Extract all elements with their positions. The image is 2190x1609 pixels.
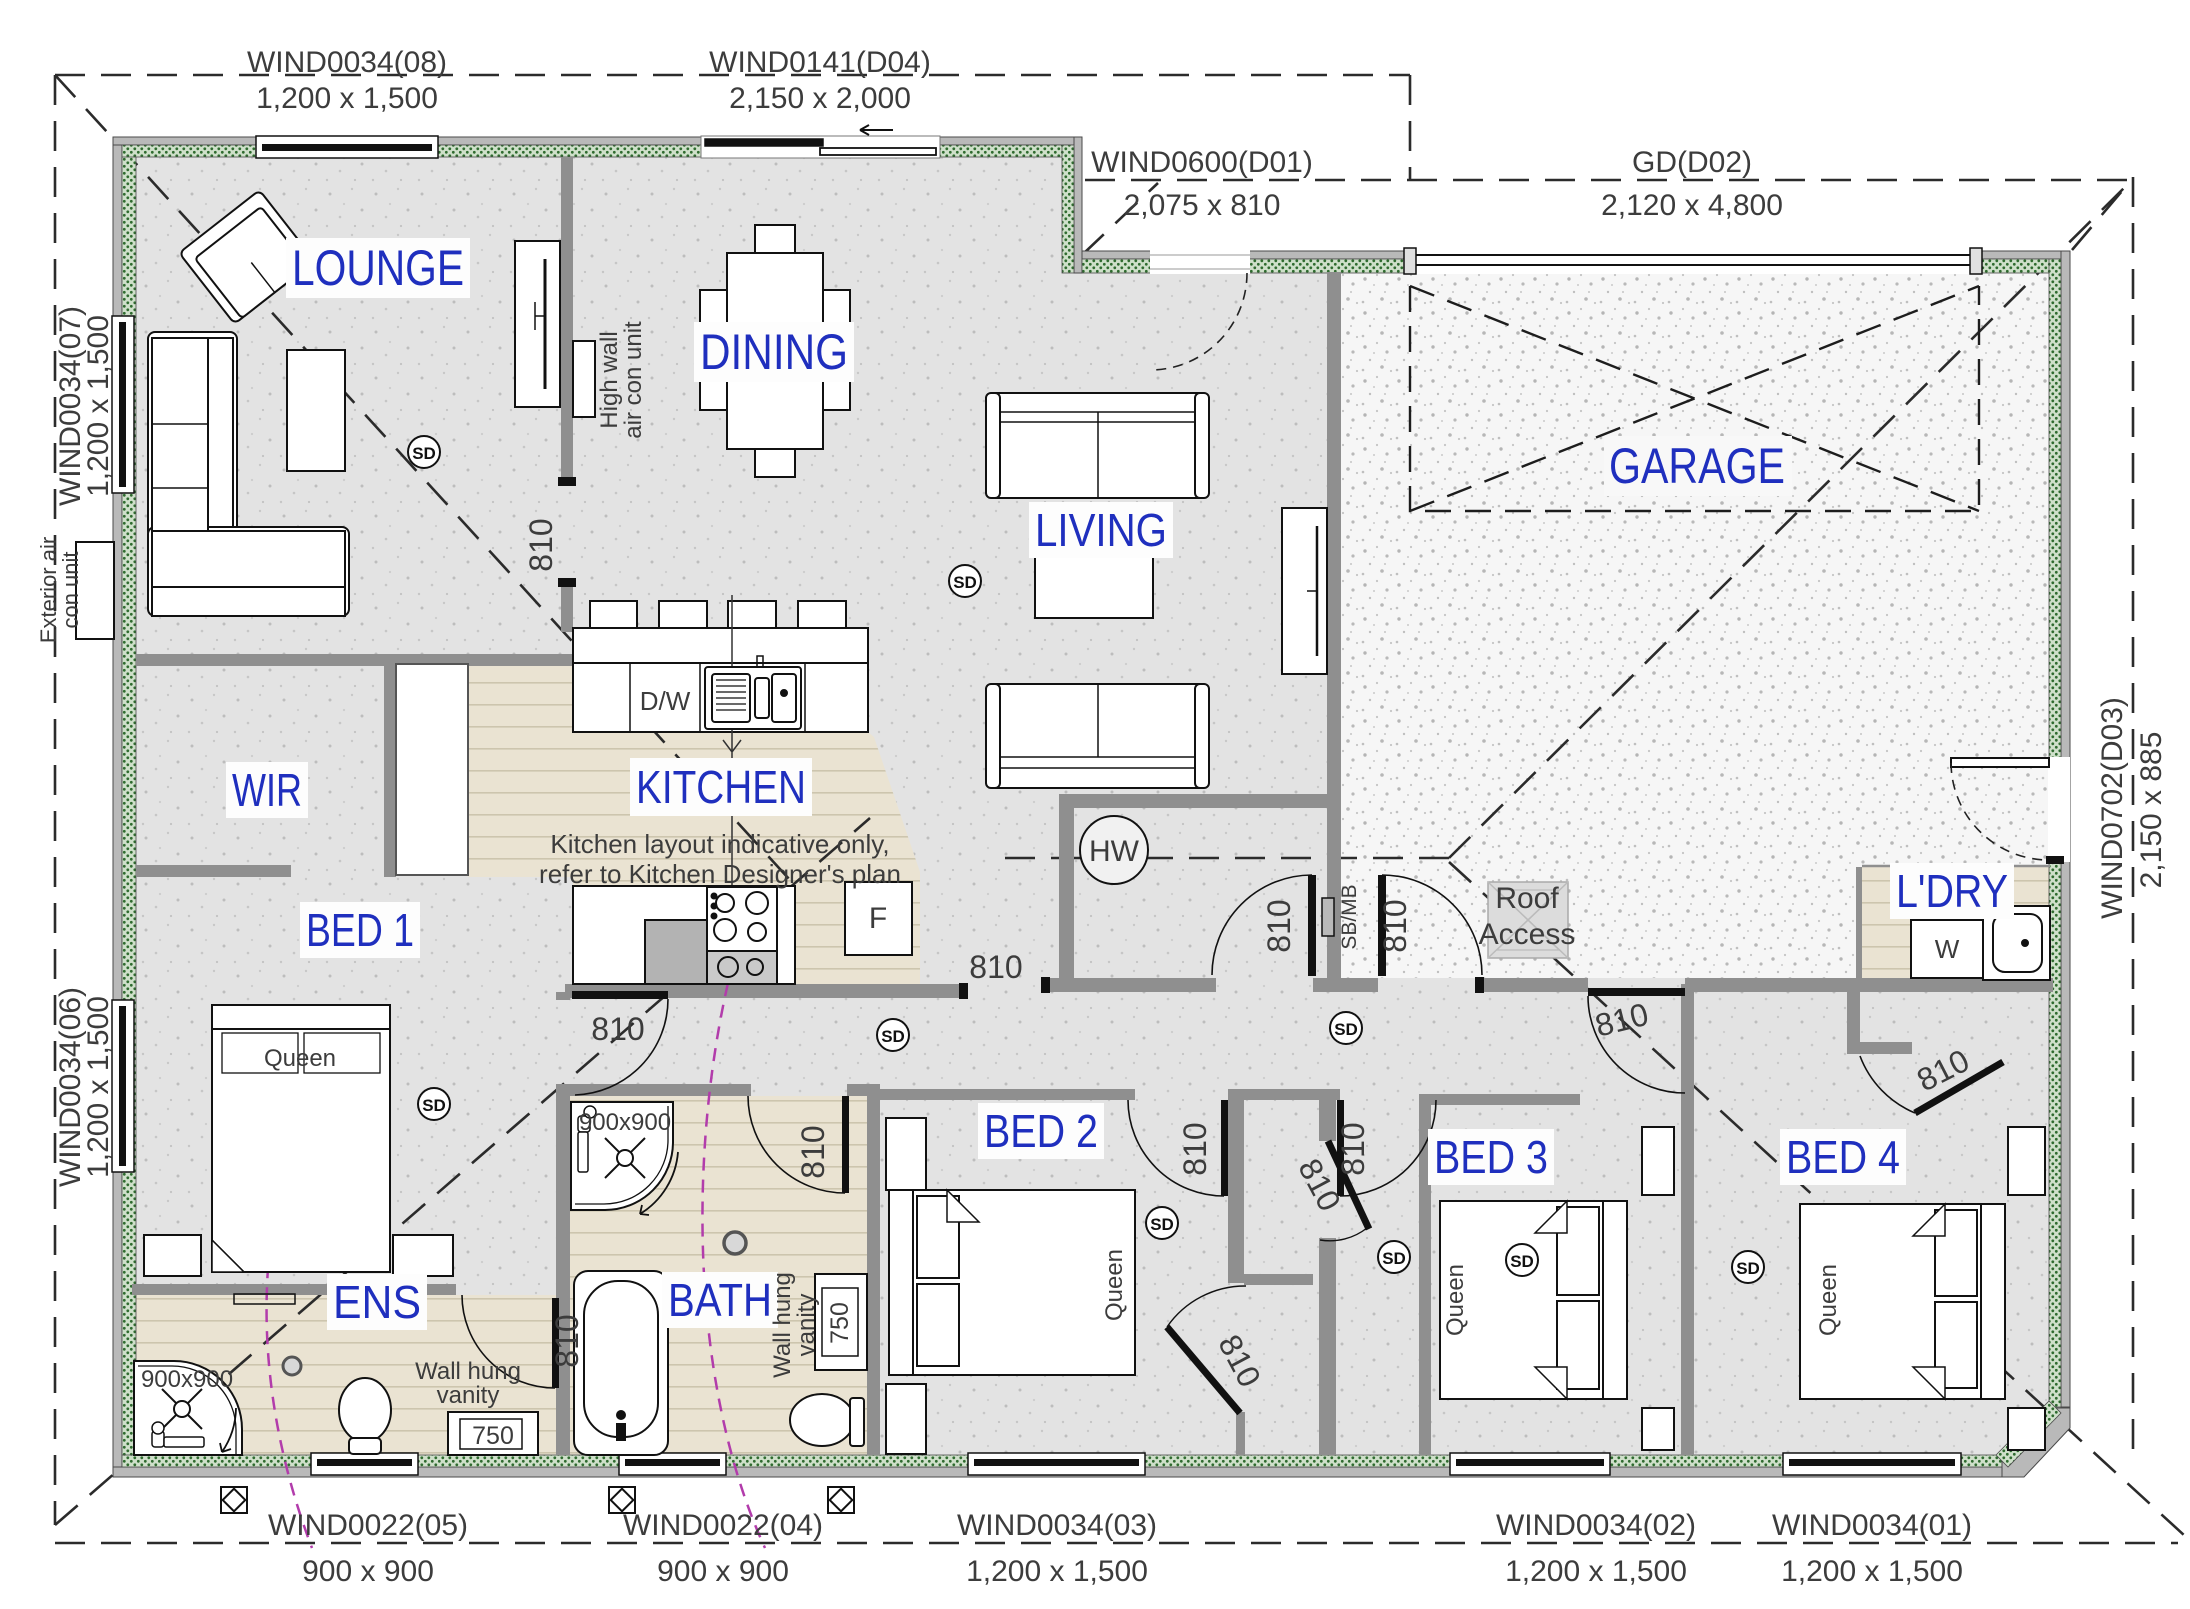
svg-text:KITCHEN: KITCHEN xyxy=(636,761,806,813)
svg-text:Roof: Roof xyxy=(1495,882,1559,915)
svg-text:810: 810 xyxy=(591,1011,644,1047)
svg-text:L'DRY: L'DRY xyxy=(1896,865,2008,917)
svg-text:900 x 900: 900 x 900 xyxy=(657,1555,789,1588)
svg-text:SD: SD xyxy=(412,444,436,463)
svg-text:W: W xyxy=(1935,934,1960,964)
svg-text:1,200 x 1,500: 1,200 x 1,500 xyxy=(256,82,438,115)
svg-text:Queen: Queen xyxy=(264,1045,336,1072)
svg-text:810: 810 xyxy=(549,1314,585,1367)
svg-text:ENS: ENS xyxy=(333,1276,421,1328)
svg-text:810: 810 xyxy=(795,1125,831,1178)
svg-text:Queen: Queen xyxy=(1815,1264,1842,1336)
svg-text:2,150 x 885: 2,150 x 885 xyxy=(2135,732,2168,889)
svg-text:Wall hung: Wall hung xyxy=(415,1358,521,1385)
svg-text:1,200 x 1,500: 1,200 x 1,500 xyxy=(82,996,115,1178)
svg-text:air con unit: air con unit xyxy=(620,321,647,439)
svg-text:High wall: High wall xyxy=(596,331,623,428)
svg-text:vanity: vanity xyxy=(437,1382,500,1409)
svg-text:Wall hung: Wall hung xyxy=(769,1272,796,1378)
svg-text:Queen: Queen xyxy=(1442,1264,1469,1336)
svg-text:LIVING: LIVING xyxy=(1035,504,1167,556)
svg-text:2,075 x 810: 2,075 x 810 xyxy=(1124,189,1281,222)
svg-text:900x900: 900x900 xyxy=(579,1109,671,1136)
svg-text:con unit: con unit xyxy=(58,551,83,628)
svg-text:WIND0702(D03): WIND0702(D03) xyxy=(2096,697,2129,919)
svg-text:WIND0034(01): WIND0034(01) xyxy=(1772,1509,1972,1542)
svg-text:refer to Kitchen Designer's pl: refer to Kitchen Designer's plan xyxy=(539,859,901,889)
svg-text:D/W: D/W xyxy=(640,686,691,716)
svg-text:WIND0022(05): WIND0022(05) xyxy=(268,1509,468,1542)
svg-text:810: 810 xyxy=(1377,899,1413,952)
svg-text:900 x 900: 900 x 900 xyxy=(302,1555,434,1588)
svg-text:WIND0034(03): WIND0034(03) xyxy=(957,1509,1157,1542)
svg-text:810: 810 xyxy=(1335,1122,1371,1175)
svg-text:BATH: BATH xyxy=(668,1274,772,1326)
svg-text:900x900: 900x900 xyxy=(141,1366,233,1393)
svg-text:WIND0034(08): WIND0034(08) xyxy=(247,46,447,79)
svg-text:DINING: DINING xyxy=(700,324,848,380)
svg-text:vanity: vanity xyxy=(793,1294,820,1357)
svg-text:GD(D02): GD(D02) xyxy=(1632,146,1752,179)
svg-text:810: 810 xyxy=(1177,1122,1213,1175)
svg-text:F: F xyxy=(869,902,887,935)
svg-text:GARAGE: GARAGE xyxy=(1609,438,1785,494)
svg-text:WIR: WIR xyxy=(232,764,302,816)
svg-text:WIND0034(02): WIND0034(02) xyxy=(1496,1509,1696,1542)
svg-text:1,200 x 1,500: 1,200 x 1,500 xyxy=(966,1555,1148,1588)
svg-text:Access: Access xyxy=(1479,918,1576,951)
svg-text:810: 810 xyxy=(1261,899,1297,952)
svg-text:1,200 x 1,500: 1,200 x 1,500 xyxy=(1781,1555,1963,1588)
svg-text:BED 4: BED 4 xyxy=(1786,1131,1900,1183)
svg-text:WIND0600(D01): WIND0600(D01) xyxy=(1091,146,1313,179)
svg-text:LOUNGE: LOUNGE xyxy=(292,240,464,296)
svg-text:BED 3: BED 3 xyxy=(1434,1131,1548,1183)
svg-text:WIND0141(D04): WIND0141(D04) xyxy=(709,46,931,79)
svg-text:750: 750 xyxy=(472,1422,514,1450)
svg-text:BED 1: BED 1 xyxy=(306,904,414,956)
svg-text:BED 2: BED 2 xyxy=(984,1105,1098,1157)
svg-text:Kitchen layout indicative only: Kitchen layout indicative only, xyxy=(550,829,889,859)
svg-text:Queen: Queen xyxy=(1101,1249,1128,1321)
svg-text:1,200 x 1,500: 1,200 x 1,500 xyxy=(82,315,115,497)
svg-text:810: 810 xyxy=(523,518,559,571)
svg-text:WIND0022(04): WIND0022(04) xyxy=(623,1509,823,1542)
svg-text:810: 810 xyxy=(969,949,1022,985)
svg-text:2,120 x 4,800: 2,120 x 4,800 xyxy=(1601,189,1783,222)
svg-text:750: 750 xyxy=(826,1302,854,1344)
svg-text:1,200 x 1,500: 1,200 x 1,500 xyxy=(1505,1555,1687,1588)
svg-text:2,150 x 2,000: 2,150 x 2,000 xyxy=(729,82,911,115)
svg-text:SB/MB: SB/MB xyxy=(1338,884,1361,949)
svg-text:HW: HW xyxy=(1089,835,1140,868)
